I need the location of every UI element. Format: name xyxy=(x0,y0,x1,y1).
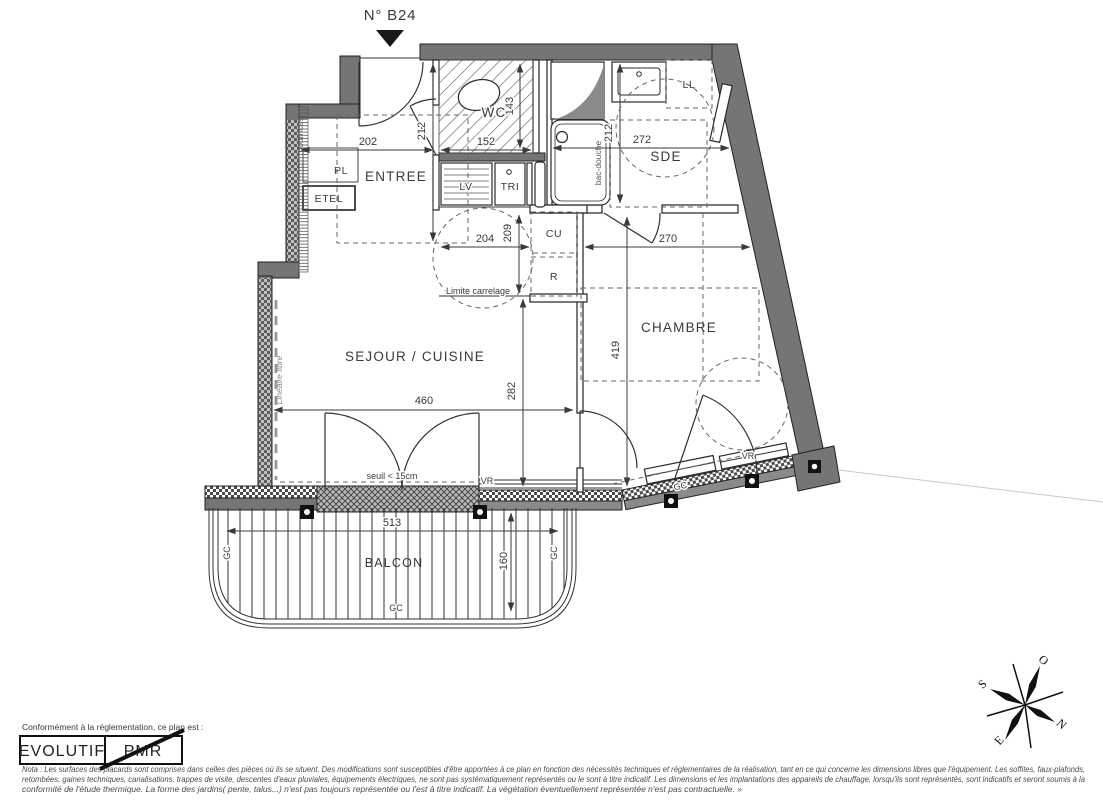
dim-kitchen-depth: 209 xyxy=(502,224,514,242)
sde-door xyxy=(604,213,660,243)
label-vr-chambre: VR xyxy=(742,451,755,461)
nota-line-2: retombées, gaines techniques, canalisati… xyxy=(22,774,1085,784)
label-sejour: SEJOUR / CUISINE xyxy=(345,349,485,364)
label-balcon: BALCON xyxy=(365,556,424,570)
label-gc-left: GC xyxy=(222,546,232,560)
floor-plan-page: N° B24 xyxy=(0,0,1103,800)
floor-plan-drawing: N° B24 xyxy=(0,0,1103,800)
compass-east: E xyxy=(991,733,1006,748)
compass-rose: O S N E xyxy=(975,652,1070,748)
label-gc-bottom: GC xyxy=(389,603,403,613)
compass-north: N xyxy=(1054,716,1070,732)
regulatory-stamp: Conformément à la réglementation, ce pla… xyxy=(19,722,204,769)
plan-number-label: N° B24 xyxy=(364,7,417,24)
entrance-arrow-icon xyxy=(376,30,404,47)
label-cu: CU xyxy=(546,228,562,240)
label-entree: ENTREE xyxy=(365,169,427,184)
label-nourrices: nourrices xyxy=(295,118,305,153)
label-vr-sejour: VR xyxy=(481,476,494,486)
stamp-evolutif: EVOLUTIF xyxy=(19,743,105,760)
exterior-walls xyxy=(205,44,1103,512)
label-tri: TRI xyxy=(501,181,520,193)
chambre-door xyxy=(580,411,637,468)
dim-chambre-depth: 419 xyxy=(610,341,622,359)
dim-sde-depth: 212 xyxy=(603,124,615,142)
label-chambre: CHAMBRE xyxy=(641,320,717,335)
stamp-caption: Conformément à la réglementation, ce pla… xyxy=(22,722,203,732)
nota-text: Nota : Les surfaces des placards sont co… xyxy=(22,764,1085,794)
radiator-2 xyxy=(535,162,545,207)
dim-entree-depth: 212 xyxy=(416,122,428,140)
plan-title: N° B24 xyxy=(364,7,417,47)
dim-balcon-depth: 160 xyxy=(498,552,510,570)
label-r: R xyxy=(550,271,558,283)
radiator xyxy=(527,163,532,205)
label-pl: PL xyxy=(334,165,348,177)
chambre-window-band xyxy=(619,436,818,510)
dim-chambre-width: 270 xyxy=(659,233,677,245)
label-wc: WC xyxy=(482,105,507,120)
doors xyxy=(325,62,757,490)
label-bac-douche: bac-douche xyxy=(593,141,603,186)
dim-sde-width: 272 xyxy=(633,134,651,146)
label-limite-carrelage: Limite carrelage xyxy=(446,286,510,296)
nota-line-1: Nota : Les surfaces des placards sont co… xyxy=(22,764,1085,774)
label-sde: SDE xyxy=(650,149,681,164)
dim-sejour-width: 460 xyxy=(415,395,433,407)
label-lineaire-libre: Linéaire libre xyxy=(274,355,284,404)
sejour-window xyxy=(479,480,622,510)
dim-sejour-depth: 282 xyxy=(506,382,518,400)
dim-kitchen-width: 204 xyxy=(476,233,494,245)
dim-entree-width: 202 xyxy=(359,136,377,148)
label-etel: ETEL xyxy=(315,193,344,205)
technical-duct xyxy=(551,62,604,119)
nota-line-3: conformité de l'étude thermique. La form… xyxy=(22,784,742,794)
dim-wc-width: 152 xyxy=(477,136,495,148)
dim-balcon-width: 513 xyxy=(383,517,401,529)
compass-west: O xyxy=(1036,652,1052,668)
label-seuil: seuil < 15cm xyxy=(367,471,418,481)
label-lv: LV xyxy=(459,181,472,193)
compass-south: S xyxy=(975,677,989,692)
label-gc-right: GC xyxy=(549,546,559,560)
label-ll: LL xyxy=(683,79,696,91)
entrance-door xyxy=(359,62,423,126)
